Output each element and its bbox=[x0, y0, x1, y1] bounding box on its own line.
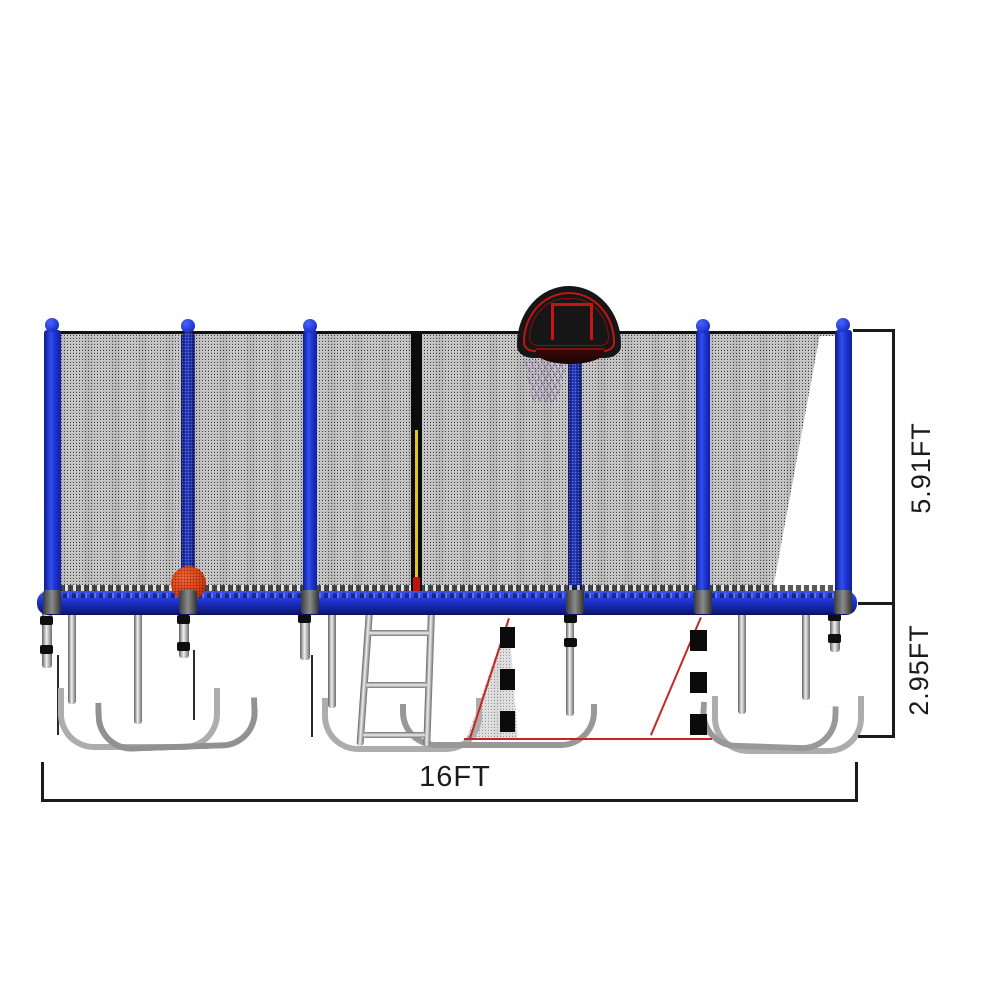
clamp-bracket-2b bbox=[177, 642, 190, 651]
pole-cap-6 bbox=[836, 318, 850, 332]
hidden-marker-dash-a3 bbox=[500, 711, 515, 732]
hidden-marker-dash-b3 bbox=[690, 714, 707, 735]
frame-rail bbox=[37, 591, 857, 615]
net-top-rope bbox=[50, 331, 850, 334]
clamp-bracket-4a bbox=[564, 614, 577, 623]
ladder-rung-2 bbox=[366, 682, 427, 688]
rail-joint-3 bbox=[301, 590, 319, 614]
enclosure-pole-1 bbox=[44, 330, 61, 600]
enclosure-pole-5 bbox=[696, 330, 710, 598]
dim-width-tick-right bbox=[855, 762, 858, 802]
dim-net-height-tick-top bbox=[853, 329, 895, 332]
leg-foot-right-2 bbox=[699, 702, 839, 753]
trampoline-dimension-diagram: 5.91FT 2.95FT 16FT bbox=[0, 0, 1000, 1000]
dim-frame-height-label: 2.95FT bbox=[904, 610, 934, 730]
hidden-marker-dash-b2 bbox=[690, 672, 707, 693]
dim-frame-height-tick-bottom bbox=[858, 735, 895, 738]
dim-width-label: 16FT bbox=[360, 760, 550, 794]
leg-tube-4 bbox=[566, 608, 574, 716]
rail-joint-1 bbox=[43, 590, 61, 614]
rail-joint-4 bbox=[566, 590, 584, 614]
dim-width-line bbox=[41, 799, 858, 802]
leg-tube-3 bbox=[328, 608, 336, 708]
enclosure-pole-6 bbox=[835, 330, 852, 600]
zipper-string bbox=[415, 430, 418, 580]
hidden-marker-dash-b1 bbox=[690, 630, 707, 651]
ladder-rung-1 bbox=[369, 630, 429, 636]
enclosure-pole-3 bbox=[303, 330, 317, 598]
rail-stitch-texture bbox=[45, 593, 849, 598]
pole-cap-3 bbox=[303, 319, 317, 333]
leg-tube-6 bbox=[802, 608, 810, 700]
backboard-shooter-square bbox=[551, 303, 593, 340]
safety-net bbox=[57, 334, 843, 596]
dim-frame-height-tick-top bbox=[858, 602, 895, 605]
clamp-bracket-1a bbox=[40, 616, 53, 625]
enclosure-pole-4 bbox=[568, 333, 582, 598]
clamp-bracket-2a bbox=[177, 615, 190, 624]
clamp-bracket-1b bbox=[40, 645, 53, 654]
dim-frame-height-line bbox=[892, 602, 895, 738]
rail-joint-6 bbox=[834, 590, 852, 614]
ladder-rung-3 bbox=[363, 732, 425, 738]
rail-joint-5 bbox=[694, 590, 712, 614]
dim-net-height-label: 5.91FT bbox=[906, 408, 936, 528]
clamp-rod-3 bbox=[311, 655, 313, 737]
pole-cap-2 bbox=[181, 319, 195, 333]
hidden-marker-dash-a1 bbox=[500, 627, 515, 648]
hidden-marker-dash-a2 bbox=[500, 669, 515, 690]
pole-cap-1 bbox=[45, 318, 59, 332]
clamp-bracket-6b bbox=[828, 634, 841, 643]
leg-foot-left-2 bbox=[95, 697, 259, 753]
clamp-bracket-4b bbox=[564, 638, 577, 647]
pole-cap-5 bbox=[696, 319, 710, 333]
dim-net-height-line bbox=[892, 329, 895, 605]
enclosure-pole-2 bbox=[181, 333, 195, 598]
guide-line-bottom bbox=[464, 738, 712, 740]
zipper-pull bbox=[413, 577, 420, 592]
clamp-bracket-3a bbox=[298, 614, 311, 623]
rail-joint-2 bbox=[179, 590, 197, 614]
dim-width-tick-left bbox=[41, 762, 44, 802]
